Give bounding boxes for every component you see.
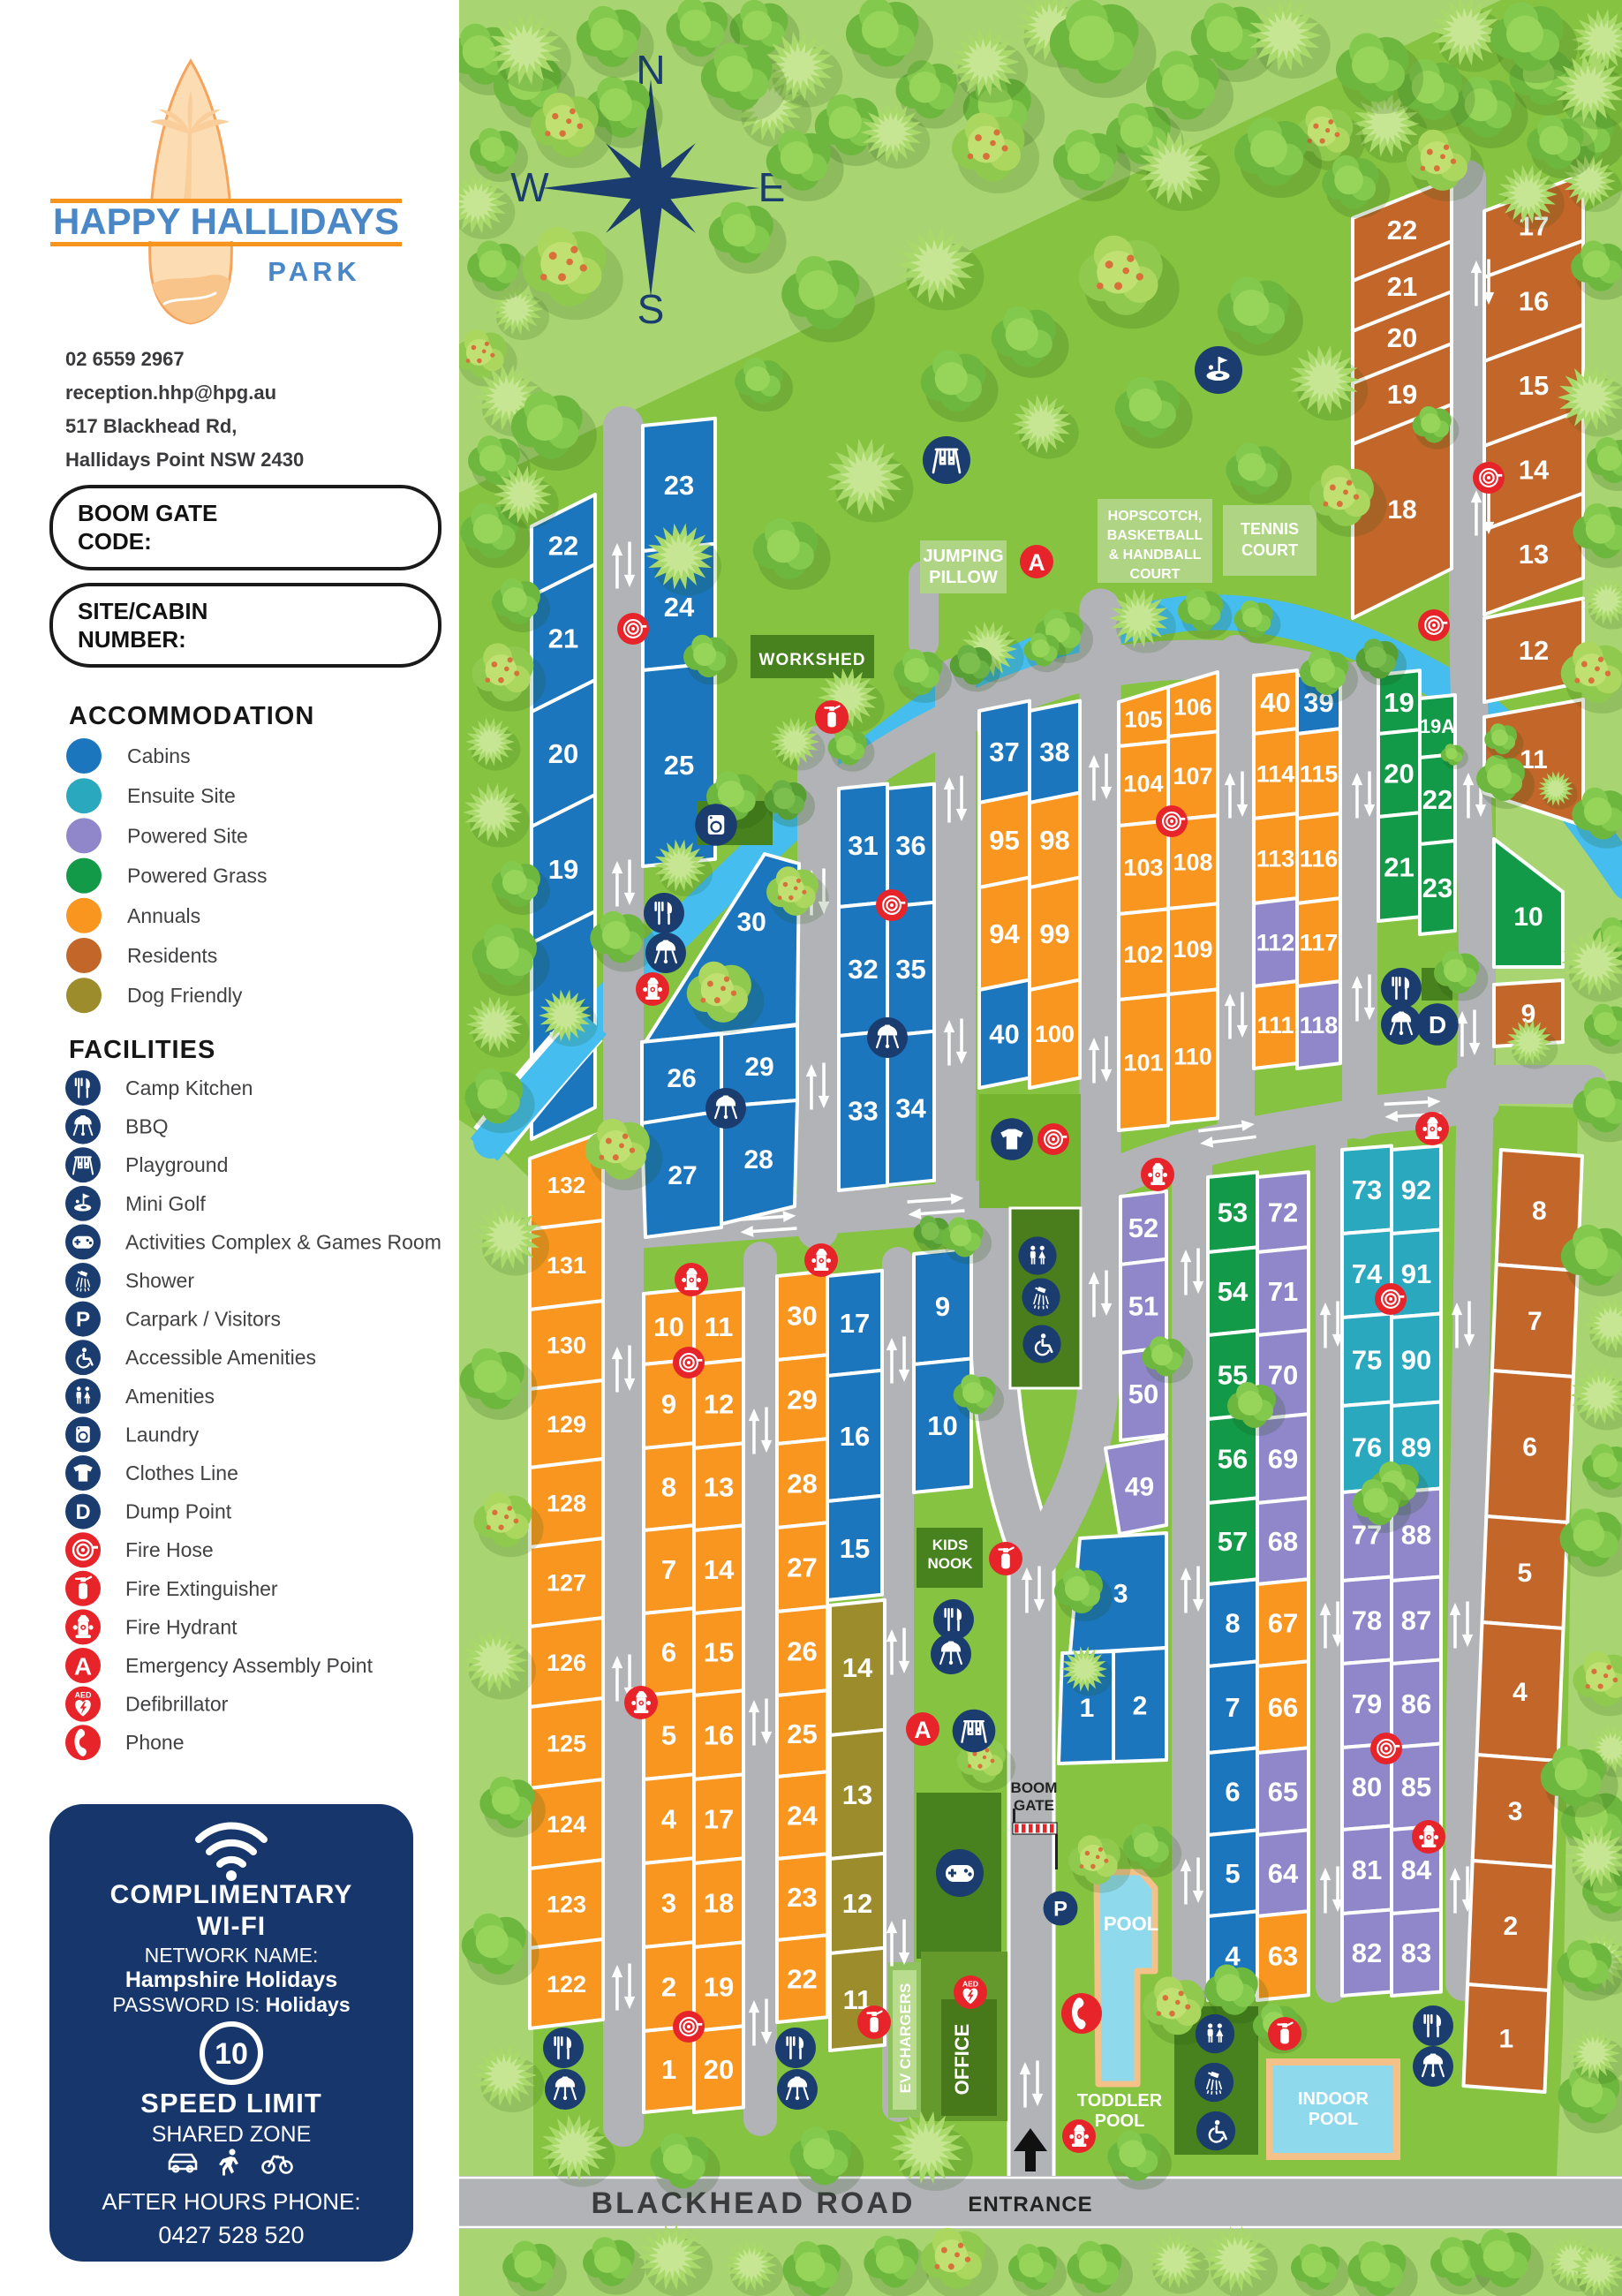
svg-text:INDOOR: INDOOR (1298, 2089, 1369, 2109)
svg-text:132: 132 (547, 1172, 585, 1198)
svg-text:78: 78 (1352, 1605, 1382, 1636)
svg-text:KIDS: KIDS (932, 1537, 969, 1553)
svg-text:122: 122 (547, 1971, 586, 1998)
svg-text:130: 130 (547, 1333, 586, 1359)
svg-text:127: 127 (547, 1570, 586, 1597)
svg-text:4: 4 (1513, 1678, 1528, 1707)
svg-text:3: 3 (1113, 1580, 1128, 1609)
svg-text:25: 25 (664, 750, 694, 781)
svg-text:NOOK: NOOK (928, 1555, 974, 1572)
svg-text:Cabins: Cabins (127, 744, 191, 767)
svg-text:90: 90 (1401, 1345, 1431, 1376)
svg-text:1: 1 (661, 2054, 676, 2085)
svg-text:NUMBER:: NUMBER: (78, 626, 186, 653)
svg-text:53: 53 (1218, 1197, 1248, 1228)
svg-text:64: 64 (1268, 1858, 1299, 1889)
svg-text:6: 6 (661, 1637, 676, 1668)
svg-text:9: 9 (661, 1389, 676, 1420)
svg-text:02 6559 2967: 02 6559 2967 (65, 348, 185, 370)
svg-text:Dump Point: Dump Point (125, 1500, 232, 1523)
svg-text:Powered Grass: Powered Grass (127, 865, 268, 887)
svg-text:& HANDBALL: & HANDBALL (1109, 548, 1202, 563)
svg-text:Fire Hydrant: Fire Hydrant (125, 1615, 238, 1638)
svg-text:30: 30 (737, 908, 766, 937)
svg-text:129: 129 (547, 1411, 586, 1438)
svg-text:Laundry: Laundry (125, 1423, 200, 1446)
svg-text:Phone: Phone (125, 1731, 185, 1754)
svg-text:14: 14 (1519, 455, 1550, 486)
svg-text:WI-FI: WI-FI (197, 1912, 266, 1941)
svg-text:66: 66 (1268, 1692, 1298, 1723)
svg-text:HOPSCOTCH,: HOPSCOTCH, (1108, 509, 1203, 524)
svg-text:67: 67 (1268, 1607, 1298, 1638)
svg-text:2: 2 (661, 1972, 676, 2003)
svg-text:63: 63 (1268, 1940, 1298, 1971)
svg-text:32: 32 (848, 954, 878, 985)
svg-text:COURT: COURT (1241, 541, 1298, 559)
svg-text:80: 80 (1352, 1771, 1382, 1802)
svg-text:35: 35 (895, 954, 925, 985)
svg-text:68: 68 (1268, 1526, 1298, 1557)
svg-text:104: 104 (1123, 771, 1163, 797)
svg-text:34: 34 (895, 1093, 926, 1124)
svg-text:Emergency Assembly Point: Emergency Assembly Point (125, 1654, 373, 1677)
svg-text:20: 20 (548, 738, 578, 769)
svg-text:15: 15 (1519, 370, 1549, 401)
svg-text:107: 107 (1173, 763, 1212, 789)
svg-text:86: 86 (1401, 1688, 1431, 1719)
svg-text:23: 23 (787, 1882, 817, 1913)
svg-text:Powered Site: Powered Site (127, 824, 248, 847)
svg-text:22: 22 (548, 530, 578, 561)
svg-text:Mini Golf: Mini Golf (125, 1192, 206, 1215)
svg-text:117: 117 (1300, 930, 1339, 956)
svg-text:7: 7 (1225, 1692, 1240, 1723)
svg-text:31: 31 (848, 830, 878, 861)
svg-text:57: 57 (1218, 1526, 1248, 1557)
svg-text:27: 27 (787, 1552, 817, 1583)
svg-text:Fire Extinguisher: Fire Extinguisher (125, 1577, 278, 1600)
svg-text:102: 102 (1123, 941, 1163, 968)
svg-text:84: 84 (1401, 1854, 1432, 1885)
svg-text:88: 88 (1401, 1520, 1431, 1551)
svg-text:POOL: POOL (1095, 2111, 1145, 2131)
svg-text:Amenities: Amenities (125, 1385, 215, 1408)
svg-text:OFFICE: OFFICE (951, 2024, 973, 2096)
svg-text:EV CHARGERS: EV CHARGERS (897, 1983, 914, 2094)
svg-text:S: S (637, 286, 665, 332)
svg-text:Activities Complex & Games Roo: Activities Complex & Games Room (125, 1230, 441, 1253)
svg-text:20: 20 (1387, 322, 1417, 353)
svg-text:28: 28 (787, 1469, 817, 1499)
svg-text:128: 128 (547, 1491, 586, 1517)
svg-text:PASSWORD IS: Holidays: PASSWORD IS: Holidays (112, 1993, 350, 2016)
svg-text:JUMPING: JUMPING (923, 547, 1003, 566)
svg-text:BBQ: BBQ (125, 1115, 169, 1138)
svg-text:124: 124 (547, 1811, 586, 1838)
svg-text:0427 528 520: 0427 528 520 (158, 2222, 304, 2248)
svg-text:65: 65 (1268, 1776, 1298, 1807)
svg-text:123: 123 (547, 1892, 586, 1918)
svg-text:ENTRANCE: ENTRANCE (968, 2193, 1092, 2217)
svg-text:NETWORK NAME:: NETWORK NAME: (145, 1944, 319, 1967)
svg-text:POOL: POOL (1309, 2110, 1359, 2129)
svg-text:Annuals: Annuals (127, 904, 200, 927)
svg-text:13: 13 (1519, 539, 1549, 570)
svg-text:111: 111 (1256, 1012, 1294, 1038)
svg-text:Defibrillator: Defibrillator (125, 1693, 229, 1716)
svg-text:14: 14 (704, 1554, 735, 1585)
svg-text:Hallidays Point NSW 2430: Hallidays Point NSW 2430 (65, 449, 304, 471)
svg-text:Camp Kitchen: Camp Kitchen (125, 1076, 253, 1099)
svg-text:131: 131 (547, 1252, 586, 1279)
svg-text:98: 98 (1039, 825, 1069, 856)
svg-text:11: 11 (705, 1311, 734, 1342)
svg-text:BOOM: BOOM (1011, 1779, 1058, 1796)
svg-text:54: 54 (1218, 1276, 1249, 1307)
svg-text:12: 12 (842, 1888, 872, 1919)
svg-text:HAPPY HALLIDAYS: HAPPY HALLIDAYS (53, 200, 399, 242)
svg-text:70: 70 (1268, 1359, 1298, 1390)
svg-text:COMPLIMENTARY: COMPLIMENTARY (110, 1880, 353, 1909)
svg-text:74: 74 (1352, 1258, 1383, 1289)
svg-text:BOOM GATE: BOOM GATE (78, 500, 217, 526)
svg-text:5: 5 (1225, 1858, 1240, 1889)
svg-text:517 Blackhead Rd,: 517 Blackhead Rd, (65, 415, 237, 437)
svg-text:WORKSHED: WORKSHED (759, 651, 866, 669)
svg-text:87: 87 (1401, 1605, 1431, 1636)
svg-text:36: 36 (895, 830, 925, 861)
svg-text:25: 25 (787, 1718, 817, 1749)
svg-text:Hampshire Holidays: Hampshire Holidays (125, 1967, 337, 1992)
svg-text:52: 52 (1128, 1212, 1158, 1243)
svg-text:79: 79 (1352, 1688, 1382, 1719)
svg-text:16: 16 (704, 1720, 734, 1751)
svg-text:10: 10 (927, 1410, 957, 1441)
svg-text:10: 10 (215, 2037, 248, 2071)
svg-text:Clothes Line: Clothes Line (125, 1461, 238, 1484)
svg-text:1: 1 (1498, 2025, 1513, 2054)
svg-text:72: 72 (1268, 1197, 1298, 1227)
svg-text:109: 109 (1173, 936, 1212, 963)
svg-text:2: 2 (1133, 1692, 1148, 1721)
svg-text:69: 69 (1268, 1443, 1298, 1474)
svg-text:16: 16 (840, 1421, 870, 1452)
svg-text:9: 9 (935, 1291, 950, 1322)
svg-text:PILLOW: PILLOW (929, 568, 998, 587)
svg-text:29: 29 (744, 1053, 773, 1082)
svg-text:Playground: Playground (125, 1153, 228, 1176)
svg-text:28: 28 (744, 1145, 773, 1174)
svg-text:COURT: COURT (1130, 567, 1181, 582)
svg-text:116: 116 (1300, 846, 1339, 872)
svg-text:20: 20 (1384, 759, 1414, 789)
svg-text:BASKETBALL: BASKETBALL (1107, 528, 1203, 543)
svg-text:SITE/CABIN: SITE/CABIN (78, 598, 207, 624)
svg-text:12: 12 (704, 1389, 734, 1420)
svg-text:40: 40 (989, 1019, 1019, 1050)
svg-text:24: 24 (664, 592, 695, 623)
svg-text:99: 99 (1039, 918, 1069, 949)
svg-text:4: 4 (661, 1804, 677, 1835)
svg-text:22: 22 (1422, 784, 1452, 815)
svg-text:21: 21 (1384, 852, 1414, 883)
svg-text:SPEED LIMIT: SPEED LIMIT (140, 2088, 322, 2119)
svg-text:113: 113 (1256, 846, 1295, 872)
svg-text:108: 108 (1173, 850, 1212, 876)
svg-text:Accessible Amenities: Accessible Amenities (125, 1346, 316, 1369)
svg-text:3: 3 (1508, 1797, 1523, 1826)
svg-text:15: 15 (704, 1637, 734, 1668)
svg-text:85: 85 (1401, 1771, 1431, 1802)
svg-text:23: 23 (1422, 872, 1452, 903)
svg-text:AFTER HOURS PHONE:: AFTER HOURS PHONE: (102, 2188, 360, 2215)
svg-text:101: 101 (1123, 1050, 1163, 1076)
svg-text:15: 15 (840, 1533, 870, 1564)
svg-text:18: 18 (704, 1888, 734, 1919)
svg-text:19: 19 (1384, 687, 1414, 718)
svg-text:5: 5 (1518, 1559, 1533, 1588)
svg-text:22: 22 (787, 1964, 817, 1995)
svg-text:13: 13 (842, 1779, 872, 1810)
svg-text:8: 8 (1532, 1197, 1547, 1226)
svg-text:ACCOMMODATION: ACCOMMODATION (69, 702, 314, 730)
svg-text:6: 6 (1522, 1433, 1537, 1462)
svg-text:BLACKHEAD ROAD: BLACKHEAD ROAD (592, 2186, 916, 2220)
svg-text:91: 91 (1401, 1258, 1431, 1289)
svg-text:27: 27 (668, 1161, 697, 1190)
svg-text:51: 51 (1128, 1291, 1158, 1322)
svg-text:73: 73 (1352, 1174, 1382, 1205)
svg-text:23: 23 (664, 470, 694, 501)
svg-text:19A: 19A (1420, 715, 1455, 737)
svg-text:106: 106 (1173, 694, 1211, 721)
svg-text:FACILITIES: FACILITIES (69, 1036, 215, 1064)
svg-text:110: 110 (1173, 1044, 1212, 1070)
svg-text:6: 6 (1225, 1777, 1240, 1808)
svg-text:37: 37 (989, 736, 1019, 767)
svg-text:21: 21 (1387, 271, 1417, 302)
svg-text:Carpark / Visitors: Carpark / Visitors (125, 1308, 281, 1331)
svg-text:29: 29 (787, 1385, 817, 1416)
svg-text:7: 7 (661, 1554, 676, 1585)
svg-text:GATE: GATE (1014, 1797, 1054, 1814)
svg-text:76: 76 (1352, 1432, 1382, 1463)
svg-text:17: 17 (840, 1308, 870, 1339)
svg-text:2: 2 (1504, 1912, 1519, 1941)
svg-text:75: 75 (1352, 1345, 1382, 1376)
svg-text:81: 81 (1352, 1854, 1382, 1885)
svg-text:126: 126 (547, 1650, 586, 1676)
svg-text:7: 7 (1528, 1307, 1543, 1336)
svg-text:POOL: POOL (1104, 1913, 1158, 1935)
svg-text:TENNIS: TENNIS (1241, 520, 1299, 538)
svg-text:1: 1 (1080, 1694, 1095, 1723)
svg-text:30: 30 (787, 1301, 817, 1332)
svg-text:95: 95 (989, 825, 1019, 856)
svg-text:19: 19 (1387, 379, 1417, 410)
svg-text:reception.hhp@hpg.au: reception.hhp@hpg.au (65, 381, 276, 404)
svg-text:Fire Hose: Fire Hose (125, 1538, 214, 1561)
svg-text:PARK: PARK (268, 256, 361, 287)
svg-text:12: 12 (1519, 635, 1549, 666)
svg-text:50: 50 (1128, 1378, 1158, 1409)
svg-text:18: 18 (1387, 495, 1416, 525)
svg-text:105: 105 (1124, 706, 1162, 733)
svg-text:Dog Friendly: Dog Friendly (127, 984, 243, 1007)
svg-text:94: 94 (989, 918, 1020, 949)
svg-text:89: 89 (1401, 1432, 1431, 1463)
svg-text:3: 3 (661, 1888, 676, 1919)
svg-text:118: 118 (1300, 1012, 1339, 1038)
svg-text:100: 100 (1035, 1021, 1075, 1047)
svg-text:26: 26 (787, 1636, 817, 1667)
svg-text:Shower: Shower (125, 1269, 194, 1292)
svg-text:103: 103 (1123, 855, 1163, 881)
svg-text:13: 13 (704, 1472, 734, 1503)
svg-text:125: 125 (547, 1731, 586, 1757)
svg-text:115: 115 (1300, 761, 1339, 788)
svg-text:112: 112 (1256, 930, 1295, 956)
svg-text:17: 17 (704, 1804, 734, 1835)
svg-text:21: 21 (548, 623, 578, 653)
svg-text:38: 38 (1039, 736, 1069, 767)
svg-text:22: 22 (1387, 215, 1417, 245)
svg-text:40: 40 (1260, 687, 1290, 718)
svg-text:8: 8 (661, 1472, 676, 1503)
svg-text:24: 24 (787, 1801, 818, 1832)
svg-text:TODDLER: TODDLER (1077, 2091, 1163, 2111)
svg-text:19: 19 (548, 854, 578, 885)
svg-text:114: 114 (1256, 761, 1295, 788)
svg-text:Ensuite Site: Ensuite Site (127, 784, 236, 807)
svg-text:10: 10 (1513, 903, 1543, 932)
svg-text:49: 49 (1125, 1473, 1154, 1502)
svg-text:16: 16 (1519, 286, 1549, 317)
svg-text:19: 19 (704, 1972, 734, 2003)
svg-text:56: 56 (1218, 1444, 1248, 1475)
svg-text:14: 14 (842, 1652, 873, 1683)
svg-text:CODE:: CODE: (78, 528, 152, 555)
svg-text:26: 26 (667, 1064, 696, 1093)
svg-text:83: 83 (1401, 1937, 1431, 1968)
svg-text:Residents: Residents (127, 944, 217, 967)
svg-text:20: 20 (704, 2054, 734, 2085)
svg-text:5: 5 (661, 1720, 676, 1751)
svg-text:92: 92 (1401, 1174, 1431, 1205)
svg-text:8: 8 (1225, 1608, 1240, 1639)
svg-text:71: 71 (1268, 1276, 1298, 1307)
svg-text:82: 82 (1352, 1937, 1382, 1968)
svg-text:33: 33 (848, 1096, 878, 1127)
svg-text:10: 10 (653, 1311, 683, 1342)
svg-text:SHARED ZONE: SHARED ZONE (152, 2122, 312, 2147)
